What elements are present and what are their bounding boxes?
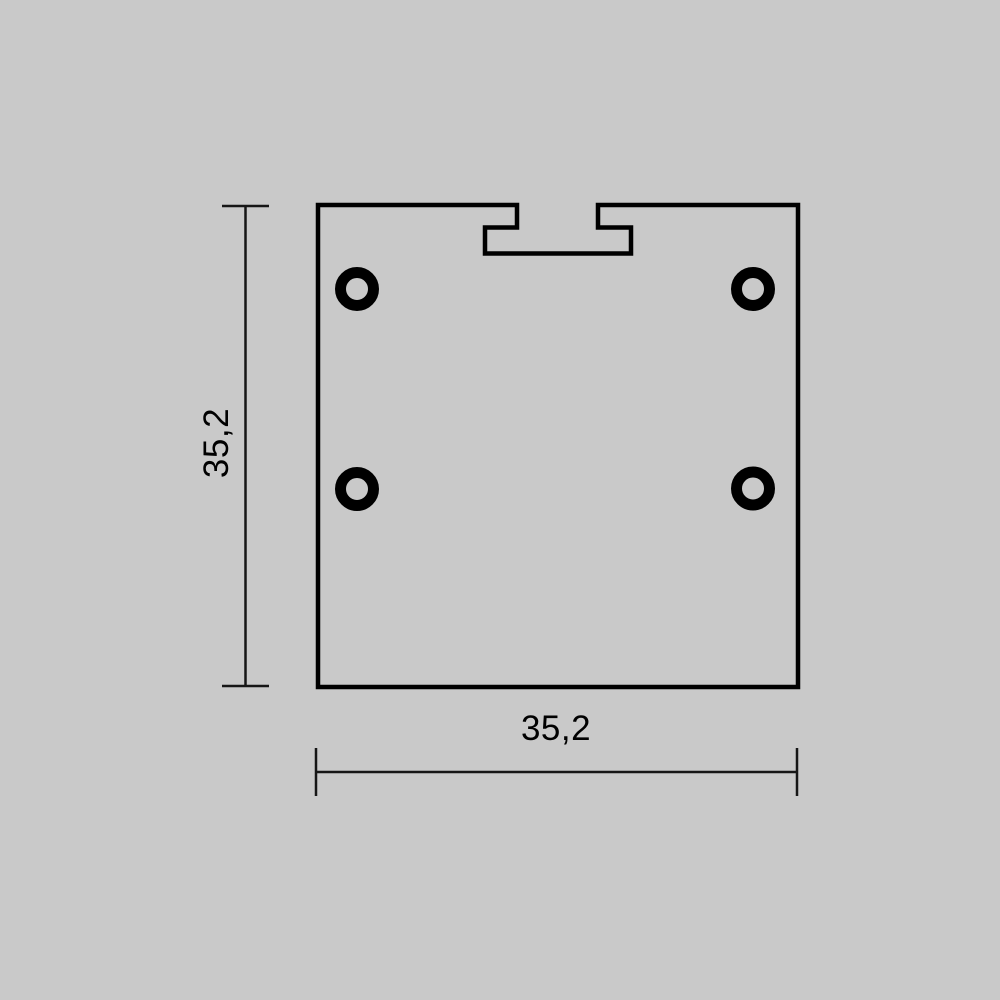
technical-drawing-canvas: 35,2 35,2	[0, 0, 1000, 1000]
mounting-hole-bottom-right	[737, 472, 770, 505]
width-dimension-line	[316, 748, 797, 796]
profile-cross-section-drawing	[0, 0, 1000, 1000]
height-dimension-label: 35,2	[199, 363, 235, 523]
mounting-hole-bottom-left	[341, 473, 374, 506]
profile-outline	[318, 205, 798, 687]
mounting-hole-top-right	[737, 273, 770, 306]
width-dimension-label: 35,2	[456, 711, 656, 747]
mounting-hole-top-left	[341, 273, 374, 306]
